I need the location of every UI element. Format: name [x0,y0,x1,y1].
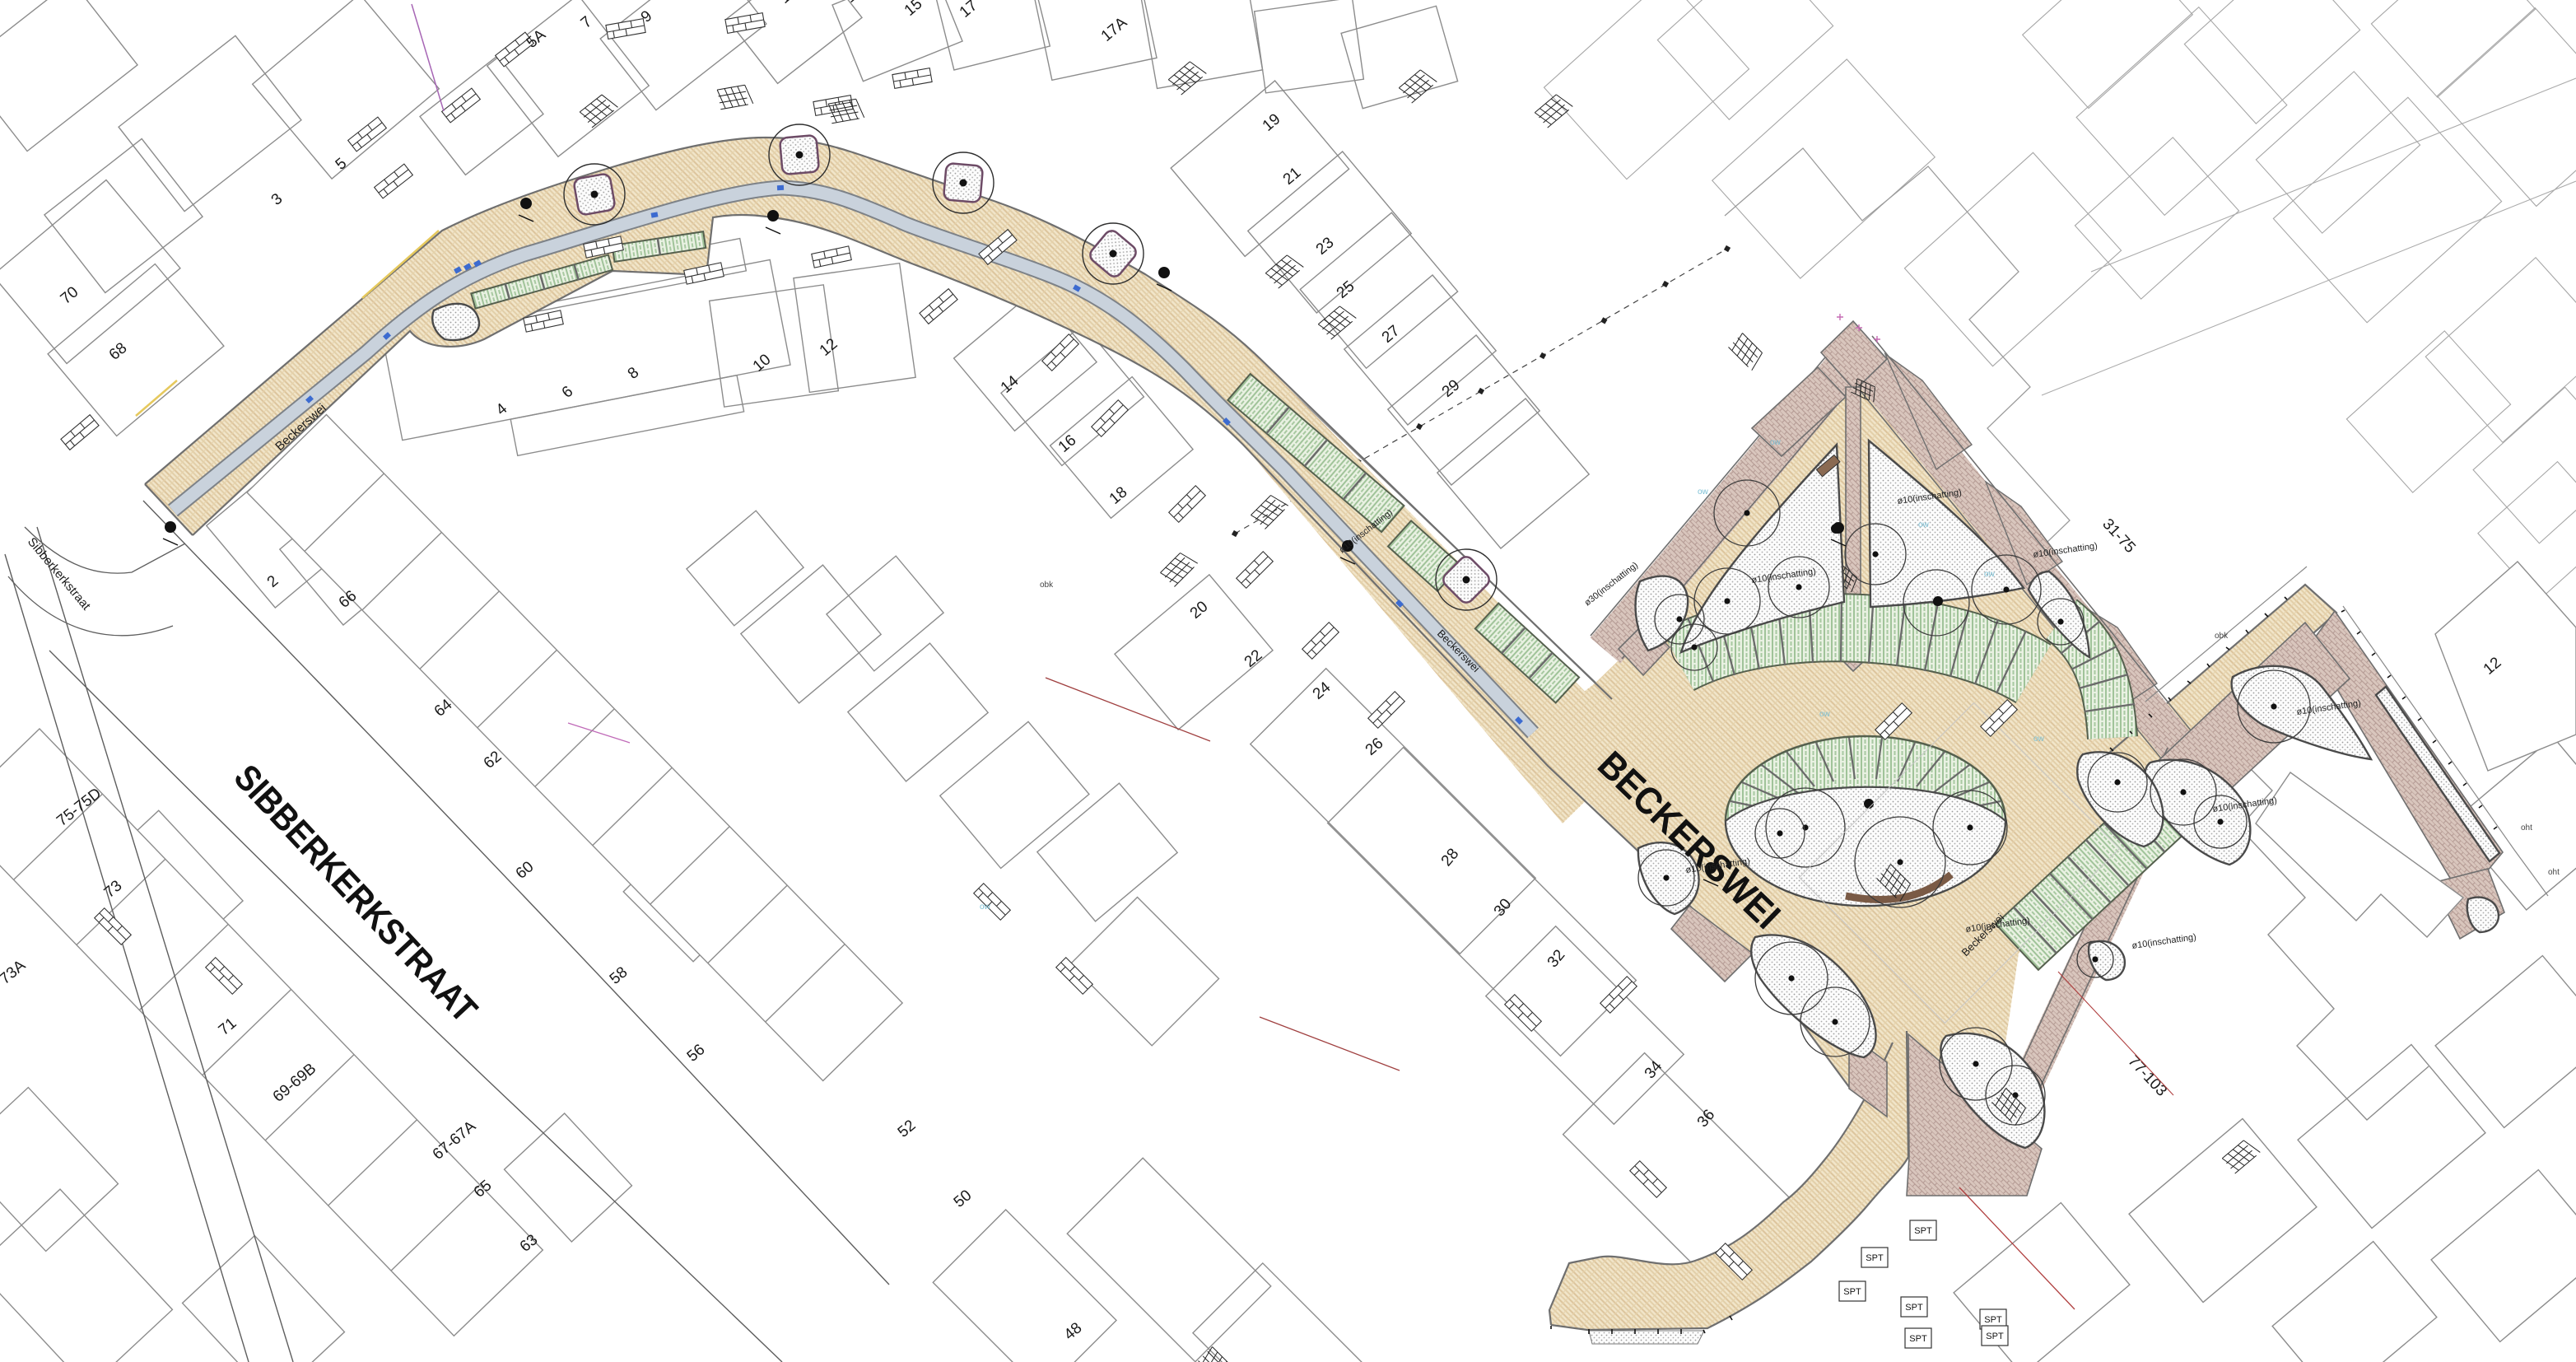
svg-text:ow: ow [1770,438,1782,447]
svg-text:SPT: SPT [1866,1253,1884,1263]
svg-text:SPT: SPT [1909,1334,1927,1344]
svg-text:ow: ow [2033,735,2045,744]
svg-text:SPT: SPT [1905,1303,1923,1313]
svg-text:SPT: SPT [1843,1287,1861,1297]
svg-text:SPT: SPT [1984,1315,2002,1325]
svg-text:ow: ow [1918,520,1930,529]
svg-text:ow: ow [980,903,991,912]
svg-text:ow: ow [1698,487,1709,497]
svg-text:SPT: SPT [1986,1332,2004,1341]
svg-text:obk: obk [2215,632,2229,641]
svg-text:ow: ow [1984,570,1996,579]
svg-text:ow: ow [1819,710,1831,719]
svg-text:SPT: SPT [1914,1226,1932,1236]
svg-text:obk: obk [1040,581,1054,590]
svg-text:oht: oht [2521,823,2532,833]
svg-text:oht: oht [2548,868,2560,877]
